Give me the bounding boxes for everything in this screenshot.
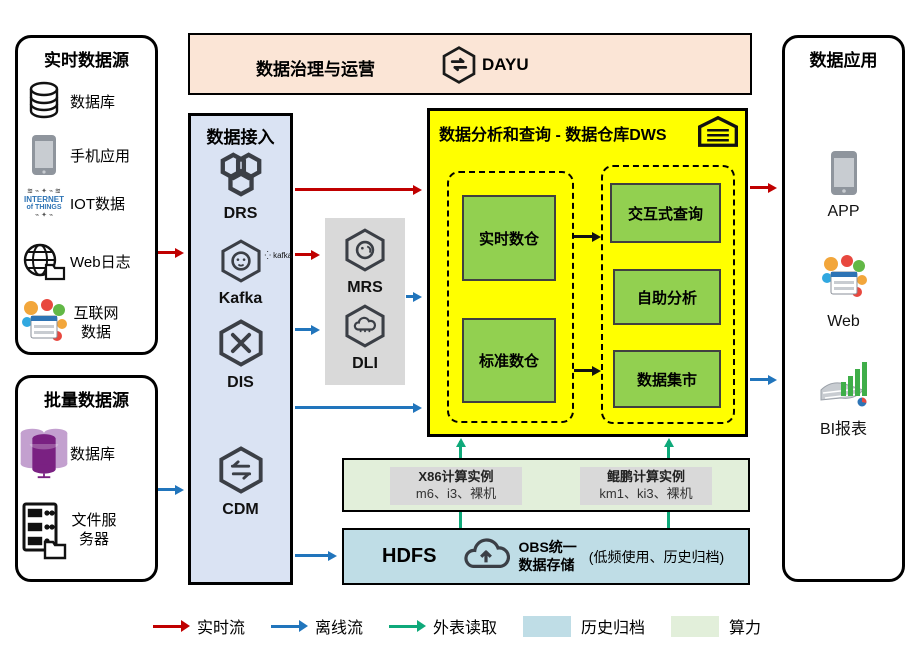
web-log-icon: [18, 241, 70, 281]
compute-band: X86计算实例 m6、i3、裸机 鲲鹏计算实例 km1、ki3、裸机: [342, 458, 750, 512]
service-item: DRS: [191, 152, 290, 223]
red-arrow-icon: [153, 625, 187, 628]
database-cluster-icon: [18, 423, 70, 483]
service-item: MRS: [325, 228, 405, 297]
architecture-diagram: 实时数据源 数据库 手机应用 ≋ ⌁ ✦ ⌁ ≋INTERNETof THING…: [0, 0, 914, 651]
list-item: 数据库: [18, 80, 155, 122]
kunpeng-instance-chip: 鲲鹏计算实例 km1、ki3、裸机: [580, 467, 712, 505]
legend-label: 实时流: [197, 614, 245, 638]
mobile-phone-icon: [18, 134, 70, 176]
source-label: 数据库: [70, 91, 115, 112]
source-label: Web日志: [70, 251, 131, 272]
source-label: 手机应用: [70, 145, 130, 166]
chip-subtitle: km1、ki3、裸机: [599, 486, 692, 503]
arrow-kafka-to-mrs: [295, 253, 316, 256]
arrow-realtime-to-access: [158, 251, 180, 254]
dws-block-interactive-query: 交互式查询: [610, 183, 721, 243]
app-label: Web: [785, 313, 902, 331]
bi-report-icon: [817, 395, 871, 412]
hdfs-label: HDFS: [382, 545, 436, 568]
internet-collage-icon: [18, 298, 70, 350]
arrow-batch-to-cdm: [158, 488, 180, 491]
warehouse-icon: [698, 116, 738, 152]
storage-band: HDFS OBS统一数据存储 (低频使用、历史归档): [342, 528, 750, 585]
list-item: Web日志: [18, 241, 155, 281]
list-item: 互联网数据: [18, 293, 155, 355]
web-collage-icon: [818, 293, 870, 310]
kafka-icon: ⁛ kafka: [219, 239, 263, 288]
dli-icon: [343, 335, 387, 352]
legend-label: 离线流: [315, 614, 363, 638]
panel-title: 实时数据源: [18, 46, 155, 71]
arrow-cdm-to-hdfs: [295, 554, 333, 557]
arrow-dis-to-dli: [295, 328, 316, 331]
source-label: 互联网数据: [70, 305, 122, 343]
legend-item-archive: 历史归档: [523, 614, 645, 638]
dws-block-realtime: 实时数仓: [462, 195, 556, 281]
archive-swatch: [523, 616, 571, 637]
arrow-realtime-to-query: [574, 235, 597, 238]
panel-title: 批量数据源: [18, 386, 155, 411]
obs-cloud-icon: [462, 536, 510, 577]
chip-subtitle: m6、i3、裸机: [416, 486, 496, 503]
drs-icon: [217, 185, 265, 202]
obs-label: OBS统一数据存储: [518, 539, 576, 574]
arrow-external-read-right: [667, 441, 670, 458]
app-item: APP: [785, 150, 902, 221]
dws-block-standard: 标准数仓: [462, 318, 556, 403]
app-phone-icon: [830, 183, 858, 200]
arrow-access-to-dws: [295, 406, 418, 409]
band-title: 数据治理与运营: [256, 55, 375, 80]
legend-label: 历史归档: [581, 614, 645, 638]
x86-instance-chip: X86计算实例 m6、i3、裸机: [390, 467, 522, 505]
service-label: DRS: [191, 205, 290, 223]
mrs-icon: [343, 259, 387, 276]
service-item: DIS: [191, 319, 290, 392]
service-label: MRS: [325, 279, 405, 297]
list-item: 手机应用: [18, 134, 155, 176]
service-item: DLI: [325, 304, 405, 373]
blue-arrow-icon: [271, 625, 305, 628]
service-item: CDM: [191, 446, 290, 519]
panel-title: 数据应用: [785, 46, 902, 71]
service-label: CDM: [191, 501, 290, 519]
data-access-panel: 数据接入 DRS ⁛ kafka Kafka DIS CDM: [188, 113, 293, 585]
service-label: Kafka: [191, 290, 290, 308]
service-label: DLI: [325, 355, 405, 373]
arrow-external-read-left: [459, 441, 462, 458]
data-apps-panel: 数据应用 APP Web BI报表: [782, 35, 905, 582]
batch-sources-panel: 批量数据源 数据库 文件服务器: [15, 375, 158, 582]
dws-block-data-mart: 数据集市: [613, 350, 721, 408]
dws-panel: 数据分析和查询 - 数据仓库DWS 实时数仓 标准数仓 交互式查询 自助分析 数…: [427, 108, 748, 437]
arrow-dws-to-bi: [750, 378, 773, 381]
app-label: BI报表: [785, 415, 902, 439]
arrow-dws-to-app: [750, 186, 773, 189]
panel-title: 数据接入: [191, 123, 290, 148]
legend-label: 外表读取: [433, 614, 497, 638]
compute-swatch: [671, 616, 719, 637]
legend-item-realtime: 实时流: [153, 614, 245, 638]
governance-band: 数据治理与运营 DAYU: [188, 33, 752, 95]
source-label: 数据库: [70, 443, 115, 464]
storage-note: (低频使用、历史归档): [589, 547, 724, 567]
processing-panel: MRS DLI: [325, 218, 405, 385]
kafka-badge: ⁛ kafka: [265, 251, 293, 260]
iot-wordcloud-icon: ≋ ⌁ ✦ ⌁ ≋INTERNETof THINGS⌁ ✦ ⌁: [18, 188, 70, 220]
app-label: APP: [785, 203, 902, 221]
file-server-icon: [18, 502, 70, 560]
dayu-icon: [442, 46, 476, 89]
app-item: BI报表: [785, 360, 902, 439]
green-arrow-icon: [389, 625, 423, 628]
service-label: DIS: [191, 374, 290, 392]
legend-item-offline: 离线流: [271, 614, 363, 638]
arrow-standard-to-mart: [574, 369, 597, 372]
chip-title: X86计算实例: [418, 469, 493, 486]
dis-icon: [217, 354, 265, 371]
list-item: ≋ ⌁ ✦ ⌁ ≋INTERNETof THINGS⌁ ✦ ⌁ IOT数据: [18, 188, 155, 220]
product-label: DAYU: [482, 55, 529, 75]
legend: 实时流 离线流 外表读取 历史归档 算力: [0, 614, 914, 638]
cdm-icon: [217, 481, 265, 498]
arrow-external-read-left-lower: [459, 512, 462, 528]
list-item: 文件服务器: [18, 498, 155, 564]
app-item: Web: [785, 254, 902, 331]
list-item: 数据库: [18, 420, 155, 486]
realtime-sources-panel: 实时数据源 数据库 手机应用 ≋ ⌁ ✦ ⌁ ≋INTERNETof THING…: [15, 35, 158, 355]
arrow-drs-to-dws: [295, 188, 418, 191]
legend-item-external-read: 外表读取: [389, 614, 497, 638]
source-label: IOT数据: [70, 193, 125, 214]
database-icon: [18, 80, 70, 122]
arrow-processing-to-dws: [406, 295, 418, 298]
legend-label: 算力: [729, 614, 761, 638]
service-item: ⁛ kafka Kafka: [191, 239, 290, 308]
arrow-external-read-right-lower: [667, 512, 670, 528]
chip-title: 鲲鹏计算实例: [607, 469, 685, 486]
dws-block-self-analysis: 自助分析: [613, 269, 721, 325]
panel-title: 数据分析和查询 - 数据仓库DWS: [439, 121, 667, 145]
legend-item-compute: 算力: [671, 614, 761, 638]
source-label: 文件服务器: [70, 512, 118, 550]
